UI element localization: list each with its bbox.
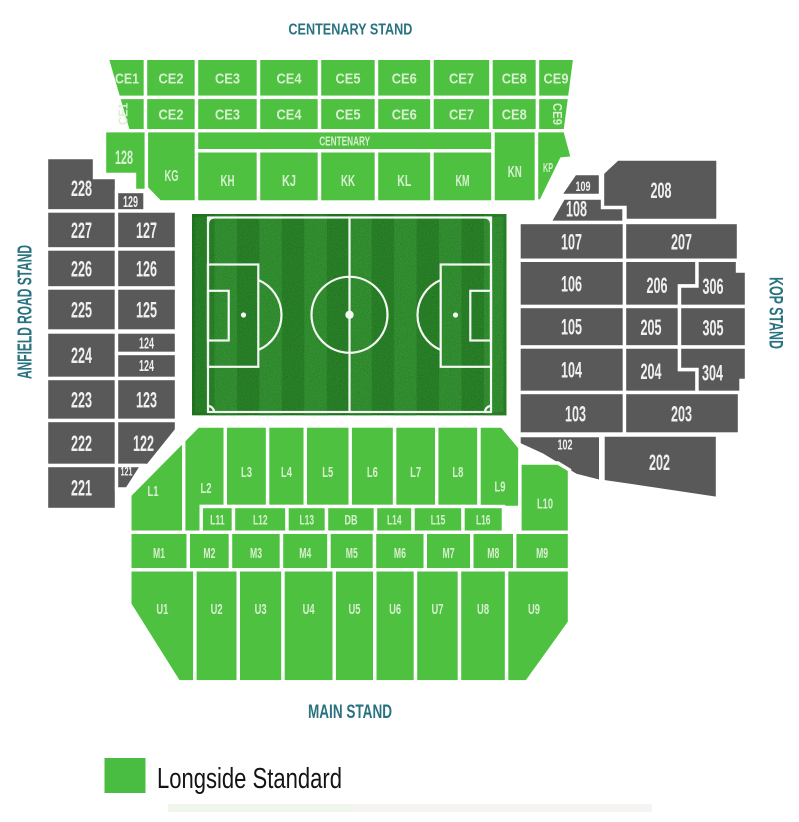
svg-text:U1: U1 bbox=[156, 601, 168, 618]
svg-text:CE3: CE3 bbox=[215, 107, 240, 124]
svg-text:129: 129 bbox=[123, 194, 138, 211]
svg-text:M6: M6 bbox=[394, 545, 406, 562]
svg-text:126: 126 bbox=[136, 257, 157, 282]
svg-text:103: 103 bbox=[565, 402, 586, 427]
svg-text:L6: L6 bbox=[367, 464, 378, 481]
svg-text:128: 128 bbox=[115, 148, 133, 169]
svg-text:KH: KH bbox=[221, 173, 235, 190]
svg-text:125: 125 bbox=[136, 298, 157, 323]
svg-text:CE7: CE7 bbox=[449, 70, 474, 87]
svg-text:ANFIELD ROAD STAND: ANFIELD ROAD STAND bbox=[15, 245, 37, 379]
svg-text:224: 224 bbox=[71, 343, 92, 368]
svg-text:L7: L7 bbox=[410, 464, 421, 481]
svg-text:104: 104 bbox=[561, 358, 582, 383]
svg-text:U5: U5 bbox=[349, 601, 361, 618]
svg-text:202: 202 bbox=[649, 450, 670, 475]
svg-text:124: 124 bbox=[139, 336, 154, 353]
svg-text:305: 305 bbox=[703, 316, 724, 341]
svg-text:105: 105 bbox=[561, 315, 582, 340]
svg-text:CE2: CE2 bbox=[159, 70, 184, 87]
svg-text:109: 109 bbox=[576, 179, 591, 194]
svg-text:CE5: CE5 bbox=[336, 70, 361, 87]
svg-text:MAIN STAND: MAIN STAND bbox=[308, 702, 392, 723]
svg-text:CE4: CE4 bbox=[277, 70, 303, 87]
svg-text:L3: L3 bbox=[241, 464, 252, 481]
svg-text:226: 226 bbox=[71, 257, 92, 282]
svg-text:CE5: CE5 bbox=[336, 107, 361, 124]
svg-text:L8: L8 bbox=[452, 464, 463, 481]
svg-text:228: 228 bbox=[71, 176, 92, 201]
svg-text:Longside Standard: Longside Standard bbox=[157, 763, 342, 795]
svg-text:306: 306 bbox=[703, 274, 724, 299]
svg-text:U4: U4 bbox=[303, 601, 315, 618]
svg-text:M2: M2 bbox=[203, 545, 215, 562]
svg-text:122: 122 bbox=[133, 431, 154, 456]
svg-text:CE1: CE1 bbox=[115, 70, 139, 87]
svg-text:M5: M5 bbox=[346, 545, 358, 562]
svg-text:225: 225 bbox=[71, 298, 92, 323]
svg-text:207: 207 bbox=[671, 230, 692, 255]
svg-text:CE9: CE9 bbox=[544, 70, 569, 87]
svg-text:L5: L5 bbox=[322, 464, 333, 481]
svg-text:208: 208 bbox=[651, 178, 672, 203]
svg-text:CE2: CE2 bbox=[159, 107, 184, 124]
svg-text:M9: M9 bbox=[536, 545, 548, 562]
svg-text:205: 205 bbox=[641, 315, 662, 340]
svg-text:CE6: CE6 bbox=[392, 70, 417, 87]
svg-text:CE7: CE7 bbox=[449, 107, 474, 124]
svg-text:204: 204 bbox=[641, 359, 662, 384]
svg-text:KP: KP bbox=[543, 160, 553, 175]
svg-text:L11: L11 bbox=[210, 512, 225, 528]
svg-text:CE8: CE8 bbox=[502, 70, 527, 87]
svg-text:KJ: KJ bbox=[282, 173, 296, 190]
svg-text:M7: M7 bbox=[443, 545, 455, 562]
svg-text:206: 206 bbox=[647, 273, 668, 298]
svg-text:227: 227 bbox=[71, 218, 92, 243]
svg-text:102: 102 bbox=[558, 437, 573, 454]
svg-text:DB: DB bbox=[345, 512, 358, 528]
svg-text:M4: M4 bbox=[299, 545, 311, 562]
svg-text:M8: M8 bbox=[487, 545, 499, 562]
svg-text:106: 106 bbox=[561, 272, 582, 297]
svg-text:304: 304 bbox=[702, 361, 723, 386]
svg-text:KL: KL bbox=[397, 173, 411, 190]
svg-text:KM: KM bbox=[456, 173, 470, 190]
svg-text:L15: L15 bbox=[431, 512, 446, 528]
svg-text:CE1: CE1 bbox=[116, 103, 131, 125]
svg-text:203: 203 bbox=[671, 402, 692, 427]
svg-text:U8: U8 bbox=[477, 601, 489, 618]
svg-text:127: 127 bbox=[136, 218, 157, 243]
svg-text:CENTENARY STAND: CENTENARY STAND bbox=[288, 22, 412, 39]
svg-text:CE4: CE4 bbox=[277, 107, 303, 124]
svg-text:123: 123 bbox=[136, 388, 157, 413]
svg-text:124: 124 bbox=[139, 358, 154, 375]
svg-text:121: 121 bbox=[121, 465, 133, 479]
svg-text:L4: L4 bbox=[281, 464, 292, 481]
svg-text:L1: L1 bbox=[148, 483, 159, 500]
svg-text:CE3: CE3 bbox=[215, 70, 240, 87]
svg-text:KOP STAND: KOP STAND bbox=[765, 277, 786, 349]
svg-text:L9: L9 bbox=[495, 479, 506, 496]
svg-text:L16: L16 bbox=[476, 512, 491, 528]
svg-text:U7: U7 bbox=[432, 601, 444, 618]
svg-text:KK: KK bbox=[341, 173, 355, 190]
svg-text:CE9: CE9 bbox=[550, 103, 565, 125]
svg-text:L10: L10 bbox=[537, 496, 553, 513]
svg-text:U3: U3 bbox=[255, 601, 267, 618]
svg-text:KN: KN bbox=[508, 164, 522, 181]
svg-text:L12: L12 bbox=[253, 512, 268, 528]
svg-text:U6: U6 bbox=[389, 601, 401, 618]
svg-text:108: 108 bbox=[566, 197, 587, 222]
svg-text:CE6: CE6 bbox=[392, 107, 417, 124]
svg-text:CENTENARY: CENTENARY bbox=[319, 134, 370, 149]
svg-text:U9: U9 bbox=[528, 601, 540, 618]
svg-text:L13: L13 bbox=[300, 512, 315, 528]
svg-text:L2: L2 bbox=[201, 480, 212, 497]
svg-text:U2: U2 bbox=[211, 601, 223, 618]
svg-text:M1: M1 bbox=[153, 545, 165, 562]
svg-text:L14: L14 bbox=[387, 512, 402, 528]
svg-text:KG: KG bbox=[165, 168, 179, 185]
svg-text:CE8: CE8 bbox=[502, 107, 527, 124]
svg-text:221: 221 bbox=[71, 476, 92, 501]
svg-text:107: 107 bbox=[561, 230, 582, 255]
svg-text:M3: M3 bbox=[250, 545, 262, 562]
svg-text:222: 222 bbox=[71, 431, 92, 456]
svg-text:223: 223 bbox=[71, 388, 92, 413]
